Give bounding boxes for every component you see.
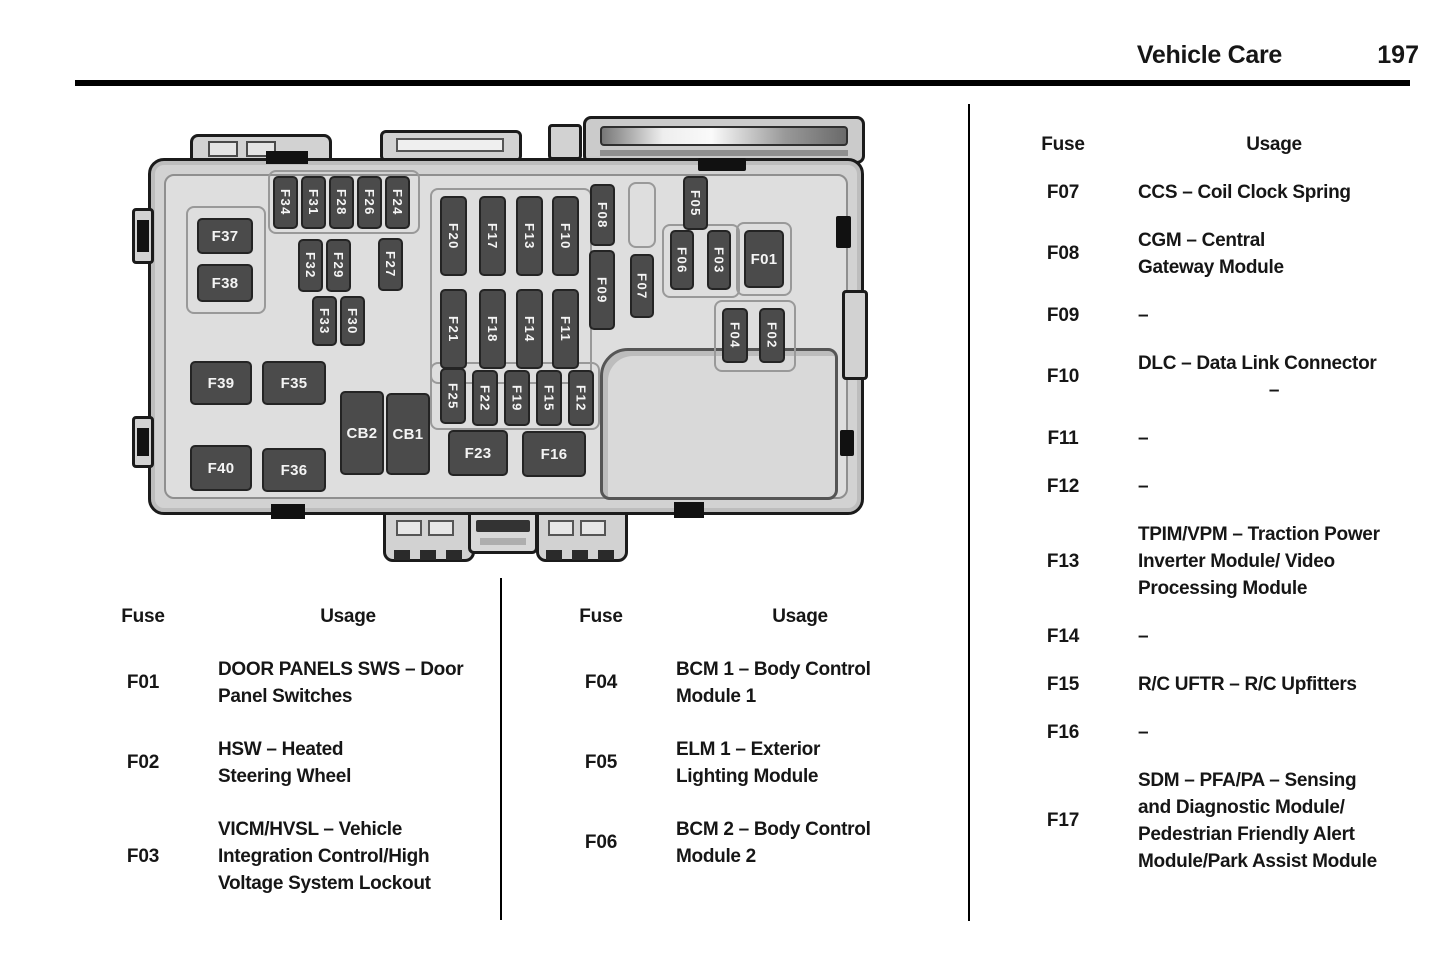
fuse-f29: F29 bbox=[326, 239, 351, 292]
fuse-row-f07: F07CCS – Coil Clock Spring bbox=[1018, 179, 1410, 206]
fuse-id: F17 bbox=[1018, 810, 1108, 832]
fuse-table-right-column: FuseUsageF07CCS – Coil Clock SpringF08CG… bbox=[1018, 131, 1410, 875]
fuse-id: F08 bbox=[1018, 243, 1108, 265]
fuse-f16: F16 bbox=[522, 431, 586, 477]
fuse-row-f17: F17SDM – PFA/PA – Sensing and Diagnostic… bbox=[1018, 767, 1410, 875]
column-divider-right bbox=[968, 104, 970, 921]
fuse-f23: F23 bbox=[448, 430, 508, 476]
table-header-row: FuseUsage bbox=[1018, 131, 1410, 158]
fuse-usage: CGM – Central Gateway Module bbox=[1138, 227, 1410, 281]
fuse-f32: F32 bbox=[298, 239, 323, 292]
fuse-f35: F35 bbox=[262, 361, 326, 405]
diagram-right-connector bbox=[842, 290, 868, 380]
fuse-row-f16: F16– bbox=[1018, 719, 1410, 746]
fuse-id: F05 bbox=[556, 752, 646, 774]
diagram-foot-notch bbox=[446, 550, 462, 560]
fuse-f25: F25 bbox=[440, 368, 466, 424]
fuse-row-f15: F15R/C UFTR – R/C Upfitters bbox=[1018, 671, 1410, 698]
fuse-usage: HSW – Heated Steering Wheel bbox=[218, 736, 478, 790]
fuse-row-f12: F12– bbox=[1018, 473, 1410, 500]
diagram-foot-notch bbox=[546, 550, 562, 560]
fuse-usage: BCM 2 – Body Control Module 2 bbox=[676, 816, 924, 870]
fuse-f04: F04 bbox=[722, 308, 748, 363]
diagram-foot-bump bbox=[580, 520, 606, 536]
fuse-usage-centered-dash: – bbox=[1138, 377, 1410, 404]
page-title: Vehicle Care bbox=[1137, 41, 1282, 70]
fuse-f14: F14 bbox=[516, 289, 543, 369]
fuse-row-f08: F08CGM – Central Gateway Module bbox=[1018, 227, 1410, 281]
fuse-id: F13 bbox=[1018, 551, 1108, 573]
fuse-f18: F18 bbox=[479, 289, 506, 369]
fuse-box-diagram: F37F38F39F35F40F36CB2CB1F23F16F01F34F31F… bbox=[128, 100, 908, 575]
fuse-f30: F30 bbox=[340, 296, 365, 346]
fuse-row-f14: F14– bbox=[1018, 623, 1410, 650]
fuse-id: F10 bbox=[1018, 366, 1108, 388]
fuse-f17: F17 bbox=[479, 196, 506, 276]
fuse-usage: SDM – PFA/PA – Sensing and Diagnostic Mo… bbox=[1138, 767, 1410, 875]
fuse-cb2: CB2 bbox=[340, 391, 384, 475]
table-header-row: FuseUsage bbox=[98, 603, 478, 630]
fuse-f03: F03 bbox=[707, 230, 731, 290]
fuse-f11: F11 bbox=[552, 289, 579, 369]
fuse-row-f06: F06BCM 2 – Body Control Module 2 bbox=[556, 816, 924, 870]
fuse-row-f04: F04BCM 1 – Body Control Module 1 bbox=[556, 656, 924, 710]
fuse-id: F04 bbox=[556, 672, 646, 694]
fuse-f19: F19 bbox=[504, 370, 530, 426]
diagram-tab-inner bbox=[396, 138, 504, 152]
fuse-id: F01 bbox=[98, 672, 188, 694]
fuse-f10: F10 bbox=[552, 196, 579, 276]
fuse-table-bottom-middle: FuseUsageF04BCM 1 – Body Control Module … bbox=[556, 603, 924, 870]
fuse-f05: F05 bbox=[683, 176, 708, 230]
diagram-foot-bump bbox=[396, 520, 422, 536]
diagram-top-notch bbox=[698, 158, 746, 171]
usage-column-header: Usage bbox=[1138, 131, 1410, 158]
diagram-foot-notch bbox=[572, 550, 588, 560]
fuse-id: F12 bbox=[1018, 476, 1108, 498]
fuse-cb1: CB1 bbox=[386, 393, 430, 475]
fuse-column-header: Fuse bbox=[1018, 134, 1108, 156]
fuse-f28: F28 bbox=[329, 176, 354, 229]
diagram-bottom-notch bbox=[271, 504, 305, 519]
fuse-f08: F08 bbox=[590, 184, 615, 246]
fuse-f22: F22 bbox=[472, 370, 498, 426]
fuse-id: F09 bbox=[1018, 305, 1108, 327]
fuse-f15: F15 bbox=[536, 370, 562, 426]
diagram-left-tab-notch bbox=[137, 220, 149, 252]
fuse-f12: F12 bbox=[568, 370, 594, 426]
fuse-f02: F02 bbox=[759, 308, 785, 363]
empty-slot-outline bbox=[628, 182, 656, 248]
fuse-f13: F13 bbox=[516, 196, 543, 276]
diagram-foot-notch bbox=[394, 550, 410, 560]
fuse-id: F07 bbox=[1018, 182, 1108, 204]
fuse-table-bottom-left: FuseUsageF01DOOR PANELS SWS – Door Panel… bbox=[98, 603, 478, 897]
fuse-f36: F36 bbox=[262, 448, 326, 492]
fuse-f40: F40 bbox=[190, 445, 252, 491]
fuse-row-f02: F02HSW – Heated Steering Wheel bbox=[98, 736, 478, 790]
fuse-usage: R/C UFTR – R/C Upfitters bbox=[1138, 671, 1410, 698]
fuse-row-f05: F05ELM 1 – Exterior Lighting Module bbox=[556, 736, 924, 790]
fuse-usage: CCS – Coil Clock Spring bbox=[1138, 179, 1410, 206]
table-header-row: FuseUsage bbox=[556, 603, 924, 630]
fuse-usage: – bbox=[1138, 473, 1410, 500]
diagram-right-notch bbox=[836, 216, 851, 248]
fuse-id: F11 bbox=[1018, 428, 1108, 450]
diagram-left-tab-notch bbox=[137, 428, 149, 456]
column-divider-middle bbox=[500, 578, 502, 920]
diagram-tab-bump bbox=[208, 141, 238, 157]
fuse-f20: F20 bbox=[440, 196, 467, 276]
fuse-f27: F27 bbox=[378, 238, 403, 291]
header-rule bbox=[75, 80, 1410, 86]
fuse-usage: – bbox=[1138, 623, 1410, 650]
fuse-f24: F24 bbox=[385, 176, 410, 229]
fuse-f33: F33 bbox=[312, 296, 337, 346]
usage-column-header: Usage bbox=[676, 603, 924, 630]
fuse-id: F03 bbox=[98, 846, 188, 868]
fuse-row-f09: F09– bbox=[1018, 302, 1410, 329]
fuse-f26: F26 bbox=[357, 176, 382, 229]
fuse-id: F06 bbox=[556, 832, 646, 854]
fuse-usage: – bbox=[1138, 302, 1410, 329]
diagram-bottom-connector bbox=[468, 512, 538, 554]
fuse-f21: F21 bbox=[440, 289, 467, 369]
fuse-id: F15 bbox=[1018, 674, 1108, 696]
diagram-foot-bump bbox=[548, 520, 574, 536]
diagram-foot-bump bbox=[428, 520, 454, 536]
diagram-top-small-tab bbox=[548, 124, 582, 160]
diagram-bottom-connector-bar bbox=[480, 538, 526, 545]
fuse-row-f11: F11– bbox=[1018, 425, 1410, 452]
fuse-f34: F34 bbox=[273, 176, 298, 229]
diagram-top-connector-bar bbox=[600, 126, 848, 146]
fuse-id: F16 bbox=[1018, 722, 1108, 744]
fuse-usage: DOOR PANELS SWS – Door Panel Switches bbox=[218, 656, 478, 710]
fuse-id: F14 bbox=[1018, 626, 1108, 648]
fuse-id: F02 bbox=[98, 752, 188, 774]
fuse-usage: – bbox=[1138, 719, 1410, 746]
fuse-f06: F06 bbox=[670, 230, 694, 290]
fuse-f37: F37 bbox=[197, 218, 253, 254]
fuse-f31: F31 bbox=[301, 176, 326, 229]
fuse-row-f01: F01DOOR PANELS SWS – Door Panel Switches bbox=[98, 656, 478, 710]
fuse-f09: F09 bbox=[589, 250, 615, 330]
diagram-right-notch bbox=[840, 430, 854, 456]
usage-column-header: Usage bbox=[218, 603, 478, 630]
fuse-usage: ELM 1 – Exterior Lighting Module bbox=[676, 736, 924, 790]
fuse-usage: TPIM/VPM – Traction Power Inverter Modul… bbox=[1138, 521, 1410, 602]
fuse-usage: – bbox=[1138, 425, 1410, 452]
fuse-column-header: Fuse bbox=[556, 606, 646, 628]
diagram-top-notch bbox=[266, 151, 308, 164]
fuse-usage: DLC – Data Link Connector– bbox=[1138, 350, 1410, 404]
fuse-f01: F01 bbox=[744, 230, 784, 288]
fuse-f39: F39 bbox=[190, 361, 252, 405]
diagram-bottom-connector-bar bbox=[476, 520, 530, 532]
page-number: 197 bbox=[1377, 41, 1419, 70]
fuse-row-f03: F03VICM/HVSL – Vehicle Integration Contr… bbox=[98, 816, 478, 897]
diagram-foot-notch bbox=[420, 550, 436, 560]
fuse-usage: BCM 1 – Body Control Module 1 bbox=[676, 656, 924, 710]
fuse-f07: F07 bbox=[630, 254, 654, 318]
fuse-column-header: Fuse bbox=[98, 606, 188, 628]
fuse-row-f10: F10DLC – Data Link Connector– bbox=[1018, 350, 1410, 404]
diagram-bottom-notch bbox=[674, 502, 704, 518]
fuse-f38: F38 bbox=[197, 264, 253, 302]
diagram-foot-notch bbox=[598, 550, 614, 560]
fuse-usage: VICM/HVSL – Vehicle Integration Control/… bbox=[218, 816, 478, 897]
diagram-top-connector-base bbox=[600, 150, 848, 156]
fuse-row-f13: F13TPIM/VPM – Traction Power Inverter Mo… bbox=[1018, 521, 1410, 602]
